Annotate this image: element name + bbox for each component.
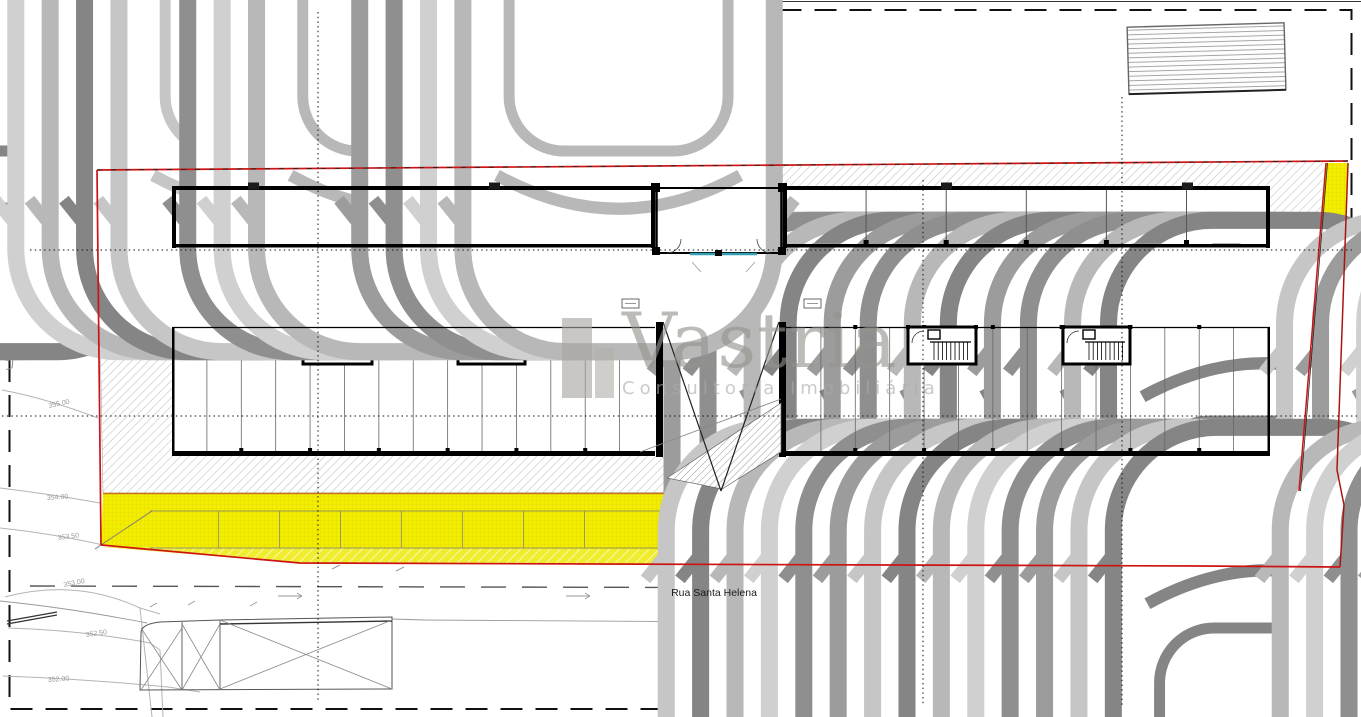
retaining-wall	[7, 612, 57, 624]
parcel-double-line	[220, 621, 392, 624]
site-plan-sheet: Rua Santa Helena 355.00 354.00 353.50 35…	[0, 0, 1361, 717]
survey-marks	[150, 601, 257, 607]
car-icon	[442, 0, 795, 352]
contour-label: 353.50	[57, 532, 79, 542]
contour-label: 353.00	[63, 578, 85, 589]
contour-label: 355.00	[48, 399, 71, 410]
neighbour-building-north	[1127, 23, 1286, 94]
parcel-outline	[140, 617, 392, 690]
contour-label: 352.00	[48, 676, 70, 684]
contour-label: 352.50	[85, 629, 107, 639]
parcel-outlines	[140, 601, 392, 690]
street-curb-left	[0, 601, 147, 623]
street-name-label: Rua Santa Helena	[671, 587, 757, 599]
site-plan-drawing: Rua Santa Helena 355.00 354.00 353.50 35…	[0, 0, 1361, 717]
contour-label: 354.00	[47, 494, 69, 502]
buildings	[0, 0, 1361, 717]
